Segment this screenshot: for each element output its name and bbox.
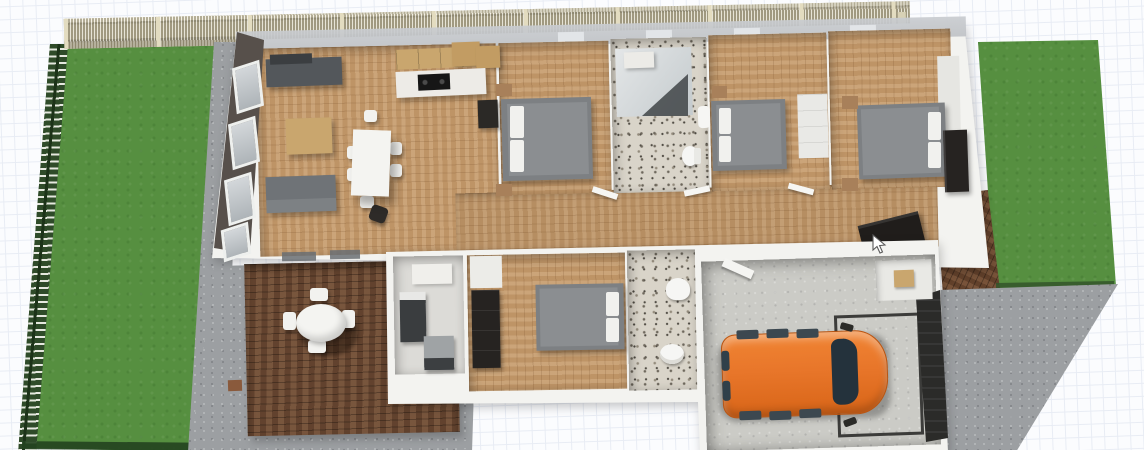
van-body: [721, 329, 890, 419]
van-side-window: [739, 411, 761, 421]
washer[interactable]: [400, 292, 427, 342]
storage-box[interactable]: [894, 270, 915, 288]
bed4-pillow: [606, 318, 619, 342]
van-side-window: [766, 329, 788, 339]
floorplan-viewport[interactable]: [0, 0, 1144, 450]
steel-cart[interactable]: [424, 336, 455, 371]
van-side-window: [796, 329, 818, 339]
van-side-window: [736, 330, 758, 340]
bed4-pillow: [606, 292, 619, 316]
van-rear-window: [722, 381, 731, 401]
mouse-cursor: [872, 234, 888, 256]
van-windshield: [831, 338, 859, 405]
bathroom2-floor: [627, 249, 697, 390]
van-rear-window: [721, 351, 730, 371]
van-side-window: [769, 411, 791, 421]
van[interactable]: [712, 325, 899, 427]
utility-counter[interactable]: [412, 264, 452, 285]
toilet[interactable]: [660, 344, 684, 364]
wall-basin[interactable]: [666, 278, 690, 300]
dark-wardrobe[interactable]: [471, 290, 500, 368]
bedroom4-closet[interactable]: [470, 256, 503, 289]
van-side-window: [799, 408, 821, 418]
